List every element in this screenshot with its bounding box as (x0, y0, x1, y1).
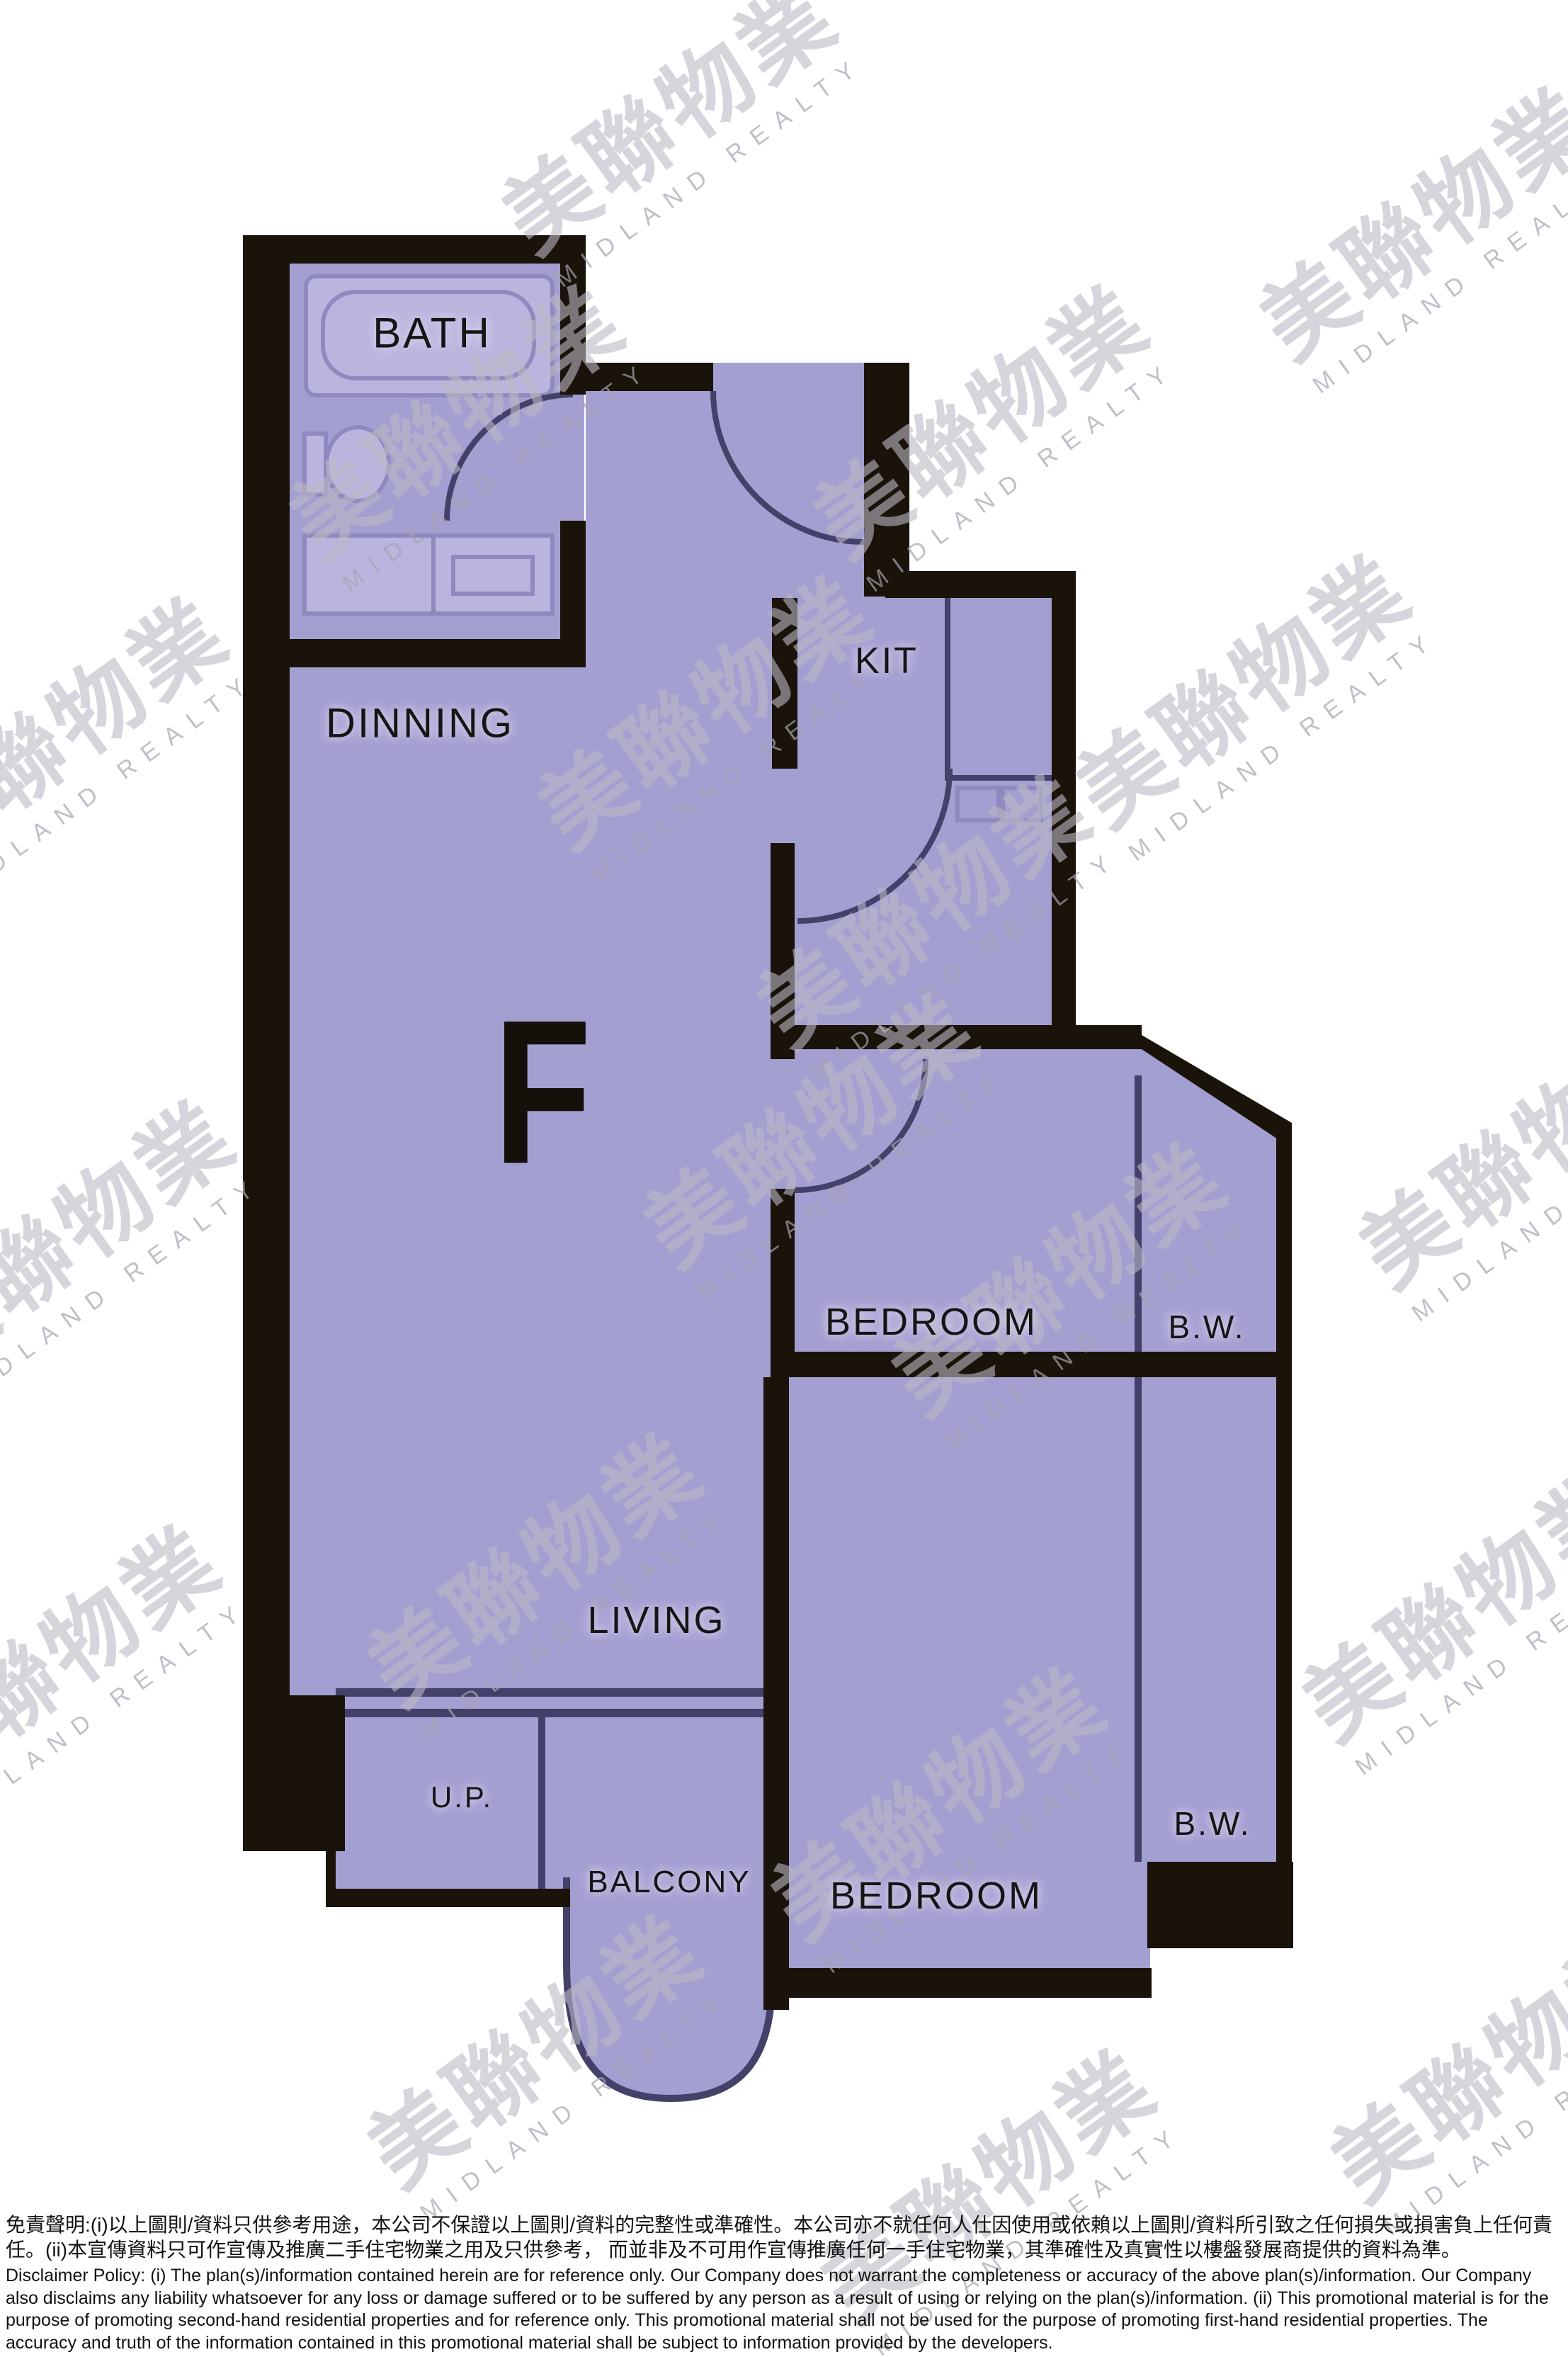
wall-kitchen-left (772, 598, 797, 769)
wall-bath-right-upper (560, 235, 586, 395)
balcony-bulge-floor (567, 1877, 772, 2098)
kitchen-divider-line (945, 598, 950, 779)
utility-balcony-divider (538, 1717, 545, 1889)
wall-left-block (243, 1695, 345, 1851)
toilet-tank (305, 434, 326, 494)
sliding-door-track-lower (336, 1709, 771, 1717)
wall-bedroom2-bottom (763, 1968, 1152, 1998)
disclaimer-block: 免責聲明:(i)以上圖則/資料只供參考用途，本公司不保證以上圖則/資料的完整性或… (6, 2213, 1562, 2354)
disclaimer-chinese: 免責聲明:(i)以上圖則/資料只供參考用途，本公司不保證以上圖則/資料的完整性或… (6, 2213, 1562, 2262)
bay-window1-label: B.W. (1168, 1308, 1245, 1346)
disclaimer-english: Disclaimer Policy: (i) The plan(s)/infor… (6, 2265, 1562, 2354)
utility-platform-label: U.P. (431, 1780, 493, 1814)
living-label: LIVING (587, 1598, 725, 1642)
wall-mid-lower (771, 1189, 795, 1377)
unit-letter-label: F (494, 975, 591, 1211)
sliding-door-track-upper (336, 1688, 771, 1697)
wall-bedroom2-left (763, 1377, 789, 2010)
wall-utility-left-edge (326, 1851, 336, 1907)
bay-window2-label: B.W. (1174, 1804, 1251, 1843)
wall-right-outer (1276, 1123, 1292, 1865)
wall-bedroom-divider (779, 1352, 1292, 1377)
bath-label: BATH (373, 309, 492, 358)
floor-plan-page: 美聯物業MIDLAND REALTY美聯物業MIDLAND REALTY美聯物業… (0, 0, 1568, 2357)
kitchen-counter-line (945, 775, 1052, 781)
bay-window1-sill (1135, 1075, 1142, 1352)
wall-bedroom1-top (772, 1025, 1142, 1049)
wall-corridor-top (586, 363, 713, 391)
wall-bath-top (243, 235, 586, 264)
bedroom1-label: BEDROOM (825, 1300, 1038, 1344)
vanity (305, 536, 552, 614)
dining-label: DINNING (326, 700, 514, 747)
wall-kitchen-top (885, 571, 1076, 598)
kitchen-label: KIT (855, 640, 919, 682)
wall-kitchen-right (1052, 571, 1076, 1049)
wall-corridor-right (864, 363, 909, 597)
bay-window2-sill (1135, 1377, 1142, 1862)
floor-plan-drawing (0, 0, 1568, 2357)
wall-left-outer (243, 235, 290, 1851)
wall-corner-block (1147, 1862, 1293, 1948)
wall-utility-bottom (326, 1889, 570, 1907)
toilet-bowl (326, 427, 389, 501)
balcony-label: BALCONY (587, 1865, 751, 1900)
bedroom2-label: BEDROOM (830, 1874, 1043, 1918)
wall-bath-bottom (243, 639, 586, 667)
